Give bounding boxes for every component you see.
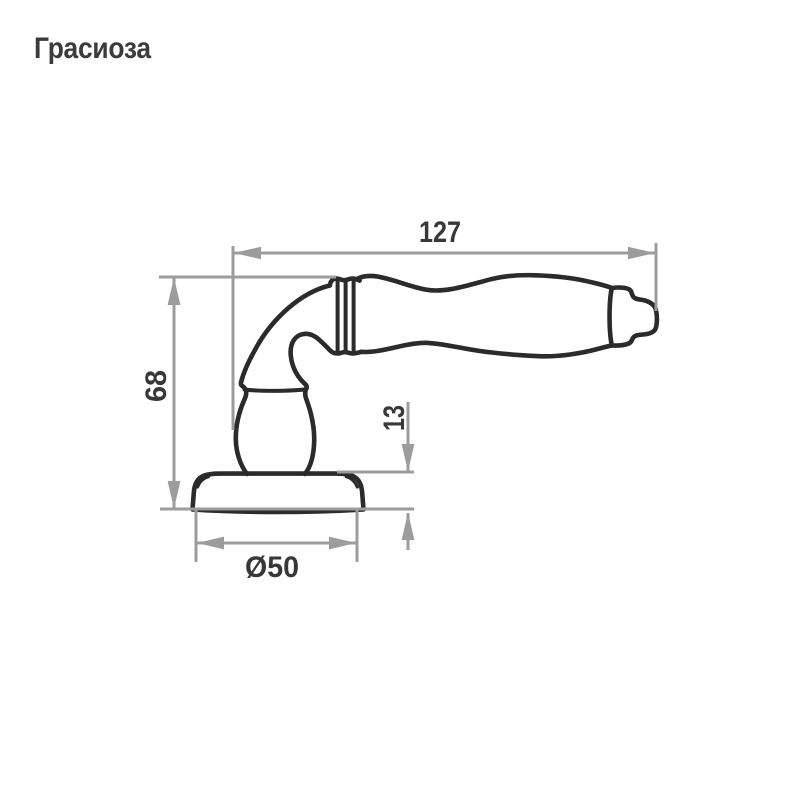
arrowhead-left <box>234 247 262 259</box>
arrowhead-down <box>402 444 415 472</box>
grip-bottom-edge <box>361 343 611 357</box>
stem-ridge <box>245 389 306 390</box>
end-cap <box>610 288 657 346</box>
arrowhead-right <box>329 537 356 550</box>
cap-profile <box>612 288 657 346</box>
grip-top-edge <box>357 275 612 290</box>
stem-right-neck-underside <box>291 334 331 474</box>
handle-outline <box>193 275 657 512</box>
arrowhead-right <box>628 247 656 259</box>
dim-height-label: 68 <box>140 370 173 402</box>
collar-rings <box>330 279 362 354</box>
grip <box>357 275 612 356</box>
cap-joint-line <box>610 288 612 345</box>
stem-and-neck <box>236 286 331 475</box>
arrowhead-up <box>402 513 415 541</box>
technical-drawing: 127 68 13 Ø50 <box>0 0 800 800</box>
arrowhead-down <box>168 481 181 509</box>
dim-base-thickness-label: 13 <box>378 405 411 431</box>
rosette <box>193 474 364 512</box>
dimension-length: 127 <box>233 216 656 430</box>
arrowhead-left <box>197 537 224 550</box>
dim-base-diameter-label: Ø50 <box>245 551 299 584</box>
drawing-page: Грасиоза <box>0 0 800 800</box>
arrowhead-up <box>168 278 181 306</box>
dimension-base-diameter: Ø50 <box>196 508 357 584</box>
dim-length-label: 127 <box>419 216 461 249</box>
